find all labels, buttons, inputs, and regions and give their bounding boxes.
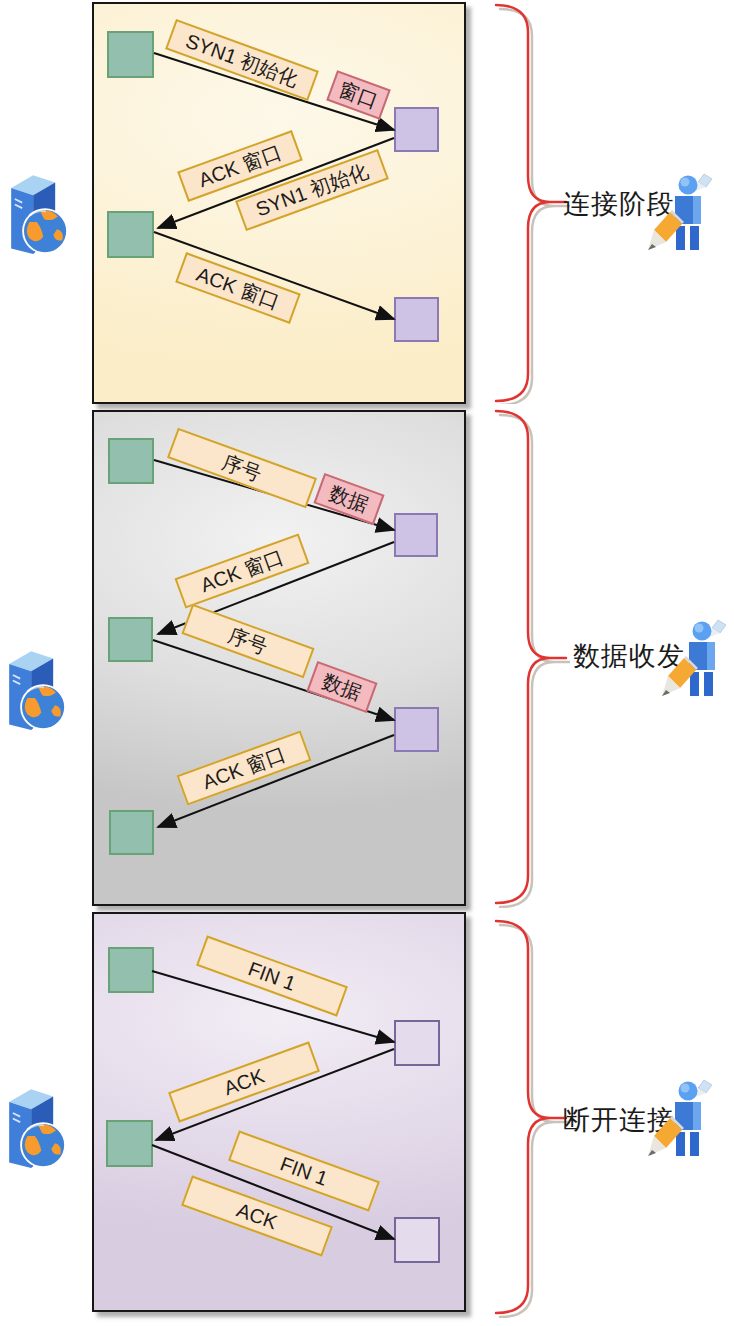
message-label: FIN 1 <box>196 935 348 1016</box>
host-b-square <box>394 107 439 152</box>
diagram-root: SYN1 初始化 窗口 ACK 窗口 SYN1 初始化 ACK 窗口 序号 数据… <box>0 0 734 1326</box>
server-globe-icon <box>2 164 68 256</box>
person-writing-icon <box>648 1078 720 1158</box>
phase-brace <box>486 2 570 404</box>
panel-disconnect: FIN 1 ACK FIN 1 ACK <box>92 912 466 1312</box>
host-a-square <box>106 1120 153 1167</box>
message-label: SYN1 初始化 <box>165 19 319 101</box>
server-globe-icon <box>0 640 66 732</box>
person-writing-icon <box>648 172 720 252</box>
message-label: ACK 窗口 <box>177 730 312 805</box>
phase-brace <box>486 918 570 1318</box>
host-a-square <box>108 438 154 484</box>
message-label: ACK 窗口 <box>175 252 301 324</box>
panel-data-transfer: 序号 数据 ACK 窗口 序号 数据 ACK 窗口 <box>92 410 466 906</box>
person-writing-icon <box>662 618 734 698</box>
phase-brace <box>486 408 570 908</box>
host-a-square <box>107 211 154 258</box>
host-a-square <box>109 810 154 855</box>
message-label: 数据 <box>306 661 377 713</box>
message-label: 序号 <box>167 428 317 509</box>
message-label: 数据 <box>313 473 384 525</box>
host-a-square <box>108 947 154 993</box>
host-b-square <box>394 707 439 752</box>
server-globe-icon <box>0 1078 66 1170</box>
host-b-square <box>394 1217 440 1263</box>
panel-connection-phase: SYN1 初始化 窗口 ACK 窗口 SYN1 初始化 ACK 窗口 <box>92 2 466 404</box>
host-a-square <box>107 31 154 78</box>
message-label: ACK 窗口 <box>175 533 310 608</box>
host-a-square <box>108 617 153 662</box>
message-label: 序号 <box>181 604 314 679</box>
message-label: ACK <box>168 1041 320 1122</box>
message-label: 窗口 <box>326 70 391 120</box>
host-b-square <box>394 297 439 342</box>
host-b-square <box>394 1020 440 1066</box>
host-b-square <box>394 513 438 557</box>
